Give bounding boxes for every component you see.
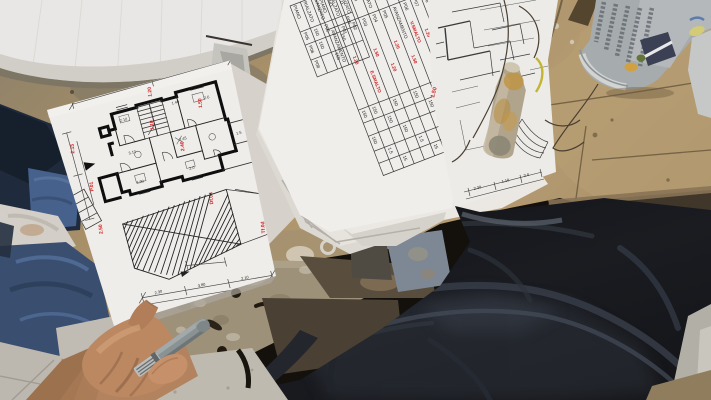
svg-text:1.10: 1.10 [149,120,156,130]
svg-text:P.01: P.01 [89,181,96,191]
svg-text:2.40: 2.40 [180,141,187,151]
svg-text:2.50: 2.50 [98,224,105,234]
svg-text:2.15: 2.15 [70,143,77,153]
svg-text:1.20: 1.20 [147,87,154,97]
svg-text:1.50: 1.50 [197,98,204,108]
